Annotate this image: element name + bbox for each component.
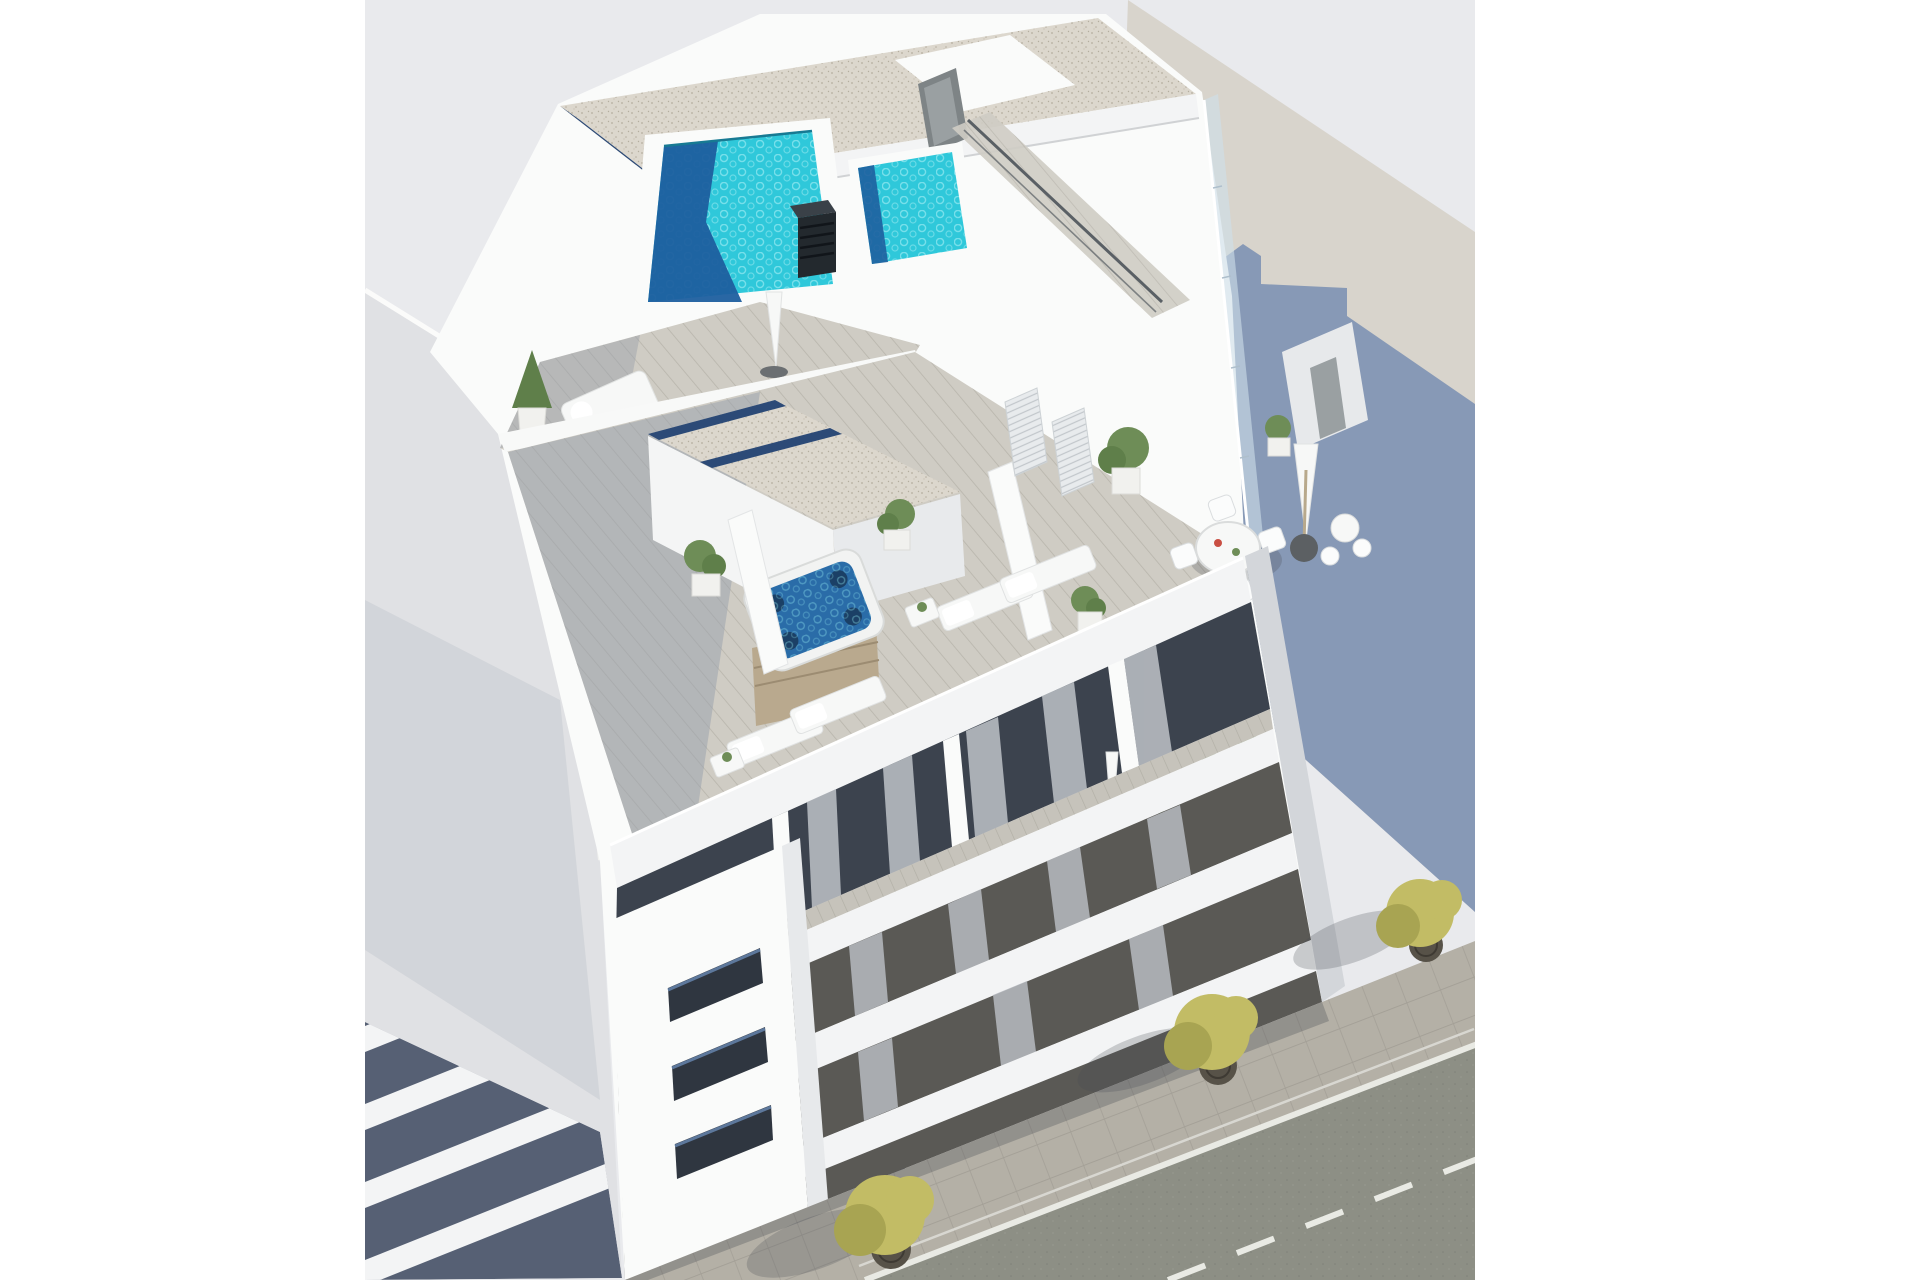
- bar-stool: [1321, 547, 1339, 565]
- bar-table: [1331, 514, 1359, 542]
- parasol-base: [1290, 534, 1318, 562]
- bar-stool: [1353, 539, 1371, 557]
- render-canvas: [0, 0, 1920, 1280]
- architectural-render: [0, 0, 1920, 1280]
- photo-area: [340, 0, 1480, 1280]
- plunge-pool: [848, 142, 978, 276]
- parasol-pole: [1304, 470, 1306, 545]
- potted-bush: [1265, 415, 1291, 456]
